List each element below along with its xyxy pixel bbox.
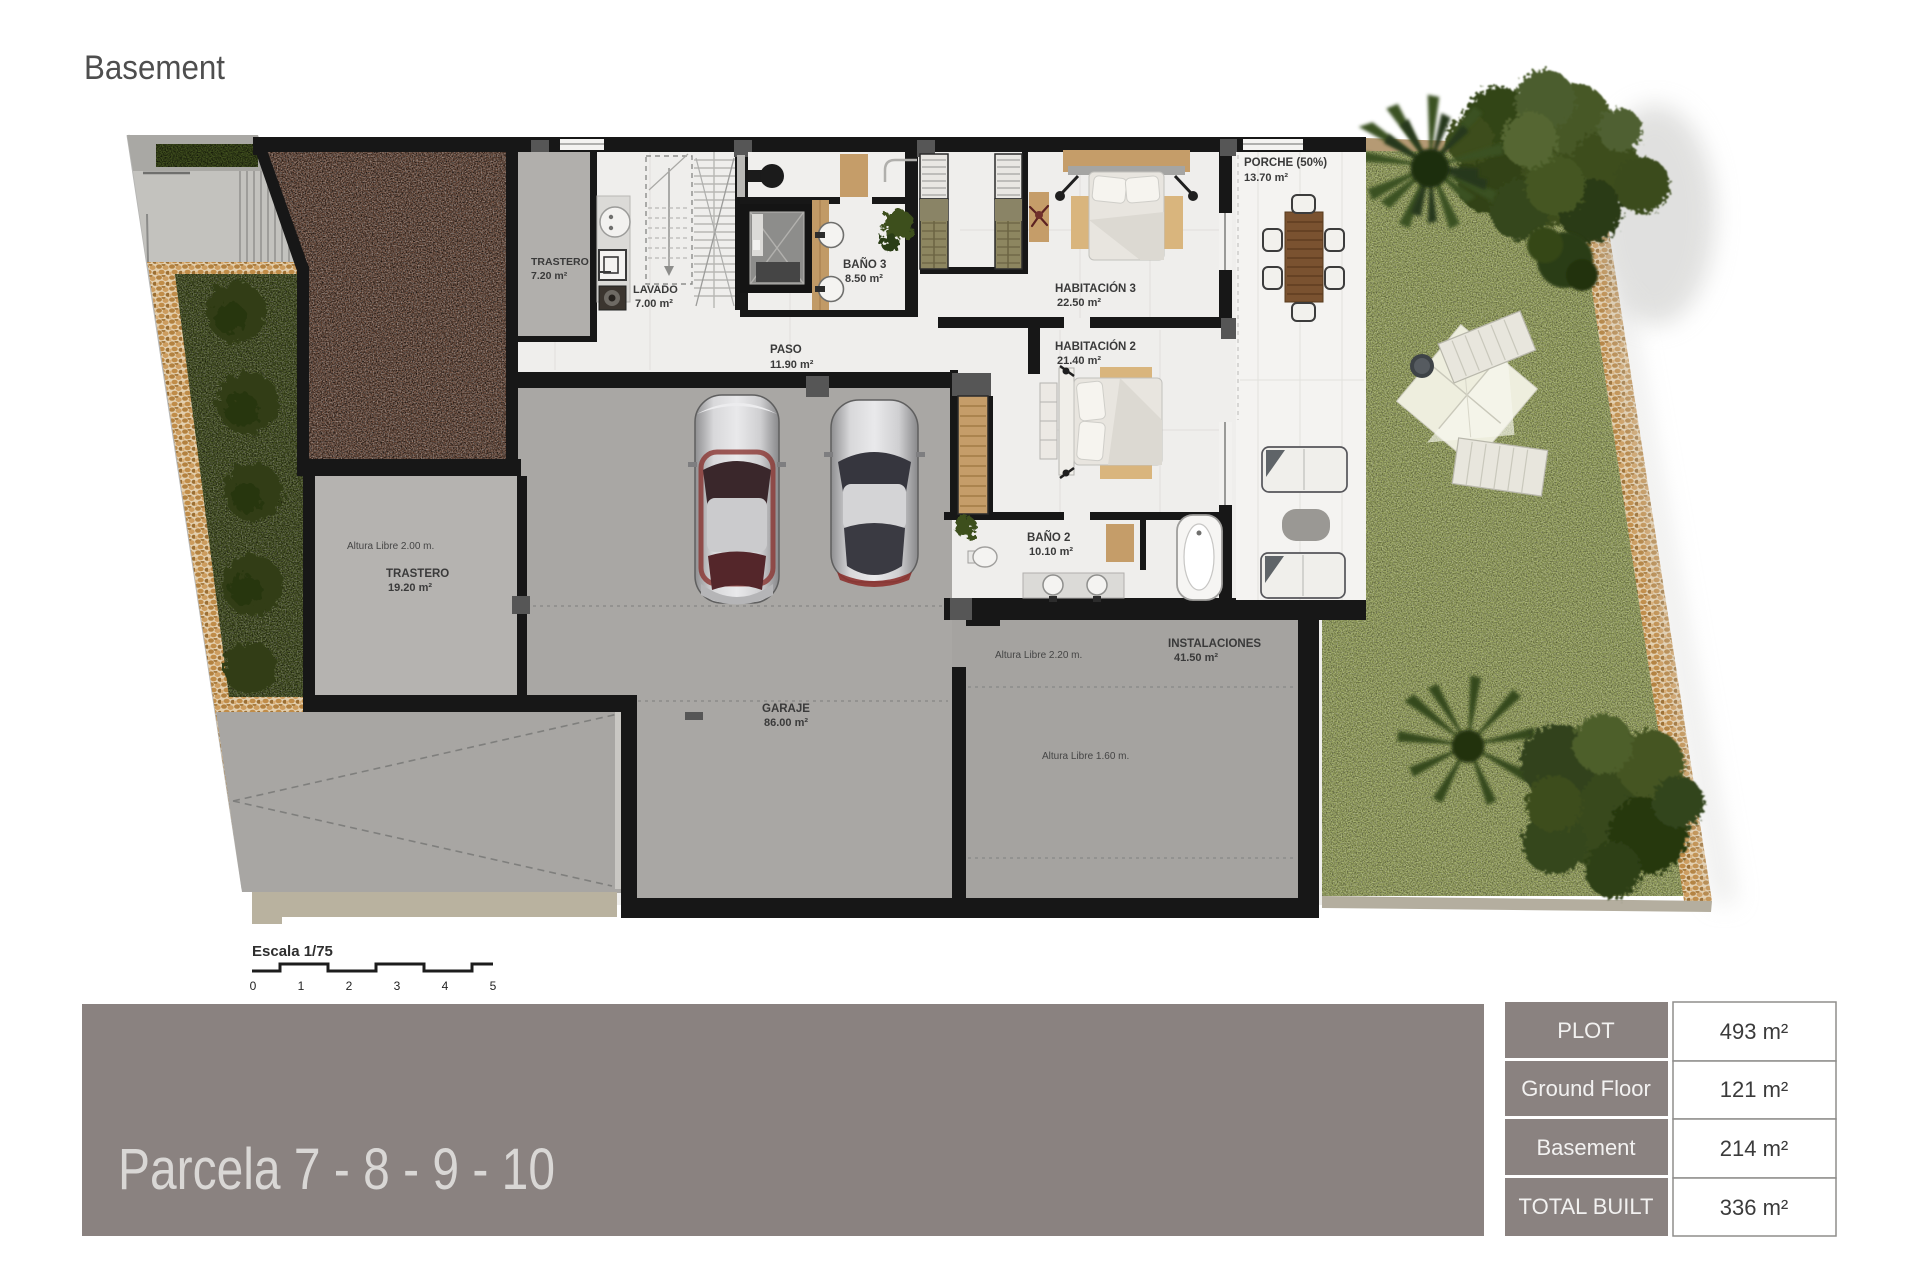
- svg-text:493 m²: 493 m²: [1720, 1019, 1788, 1044]
- svg-text:7.00 m²: 7.00 m²: [635, 298, 673, 310]
- svg-text:86.00 m²: 86.00 m²: [764, 717, 808, 729]
- svg-text:121 m²: 121 m²: [1720, 1077, 1788, 1102]
- svg-text:Parcela 7 - 8 - 9 - 10: Parcela 7 - 8 - 9 - 10: [118, 1137, 555, 1202]
- svg-text:GARAJE: GARAJE: [762, 703, 810, 715]
- svg-text:BAÑO 2: BAÑO 2: [1027, 531, 1070, 544]
- svg-text:4: 4: [442, 979, 449, 993]
- svg-text:3: 3: [394, 979, 401, 993]
- svg-text:336 m²: 336 m²: [1720, 1195, 1788, 1220]
- svg-text:INSTALACIONES: INSTALACIONES: [1168, 638, 1261, 650]
- svg-text:10.10 m²: 10.10 m²: [1029, 546, 1073, 558]
- svg-text:21.40 m²: 21.40 m²: [1057, 355, 1101, 367]
- svg-text:PLOT: PLOT: [1557, 1018, 1614, 1043]
- svg-text:Altura Libre 2.00 m.: Altura Libre 2.00 m.: [347, 541, 434, 552]
- svg-text:13.70 m²: 13.70 m²: [1244, 172, 1288, 184]
- svg-text:Basement: Basement: [1536, 1135, 1635, 1160]
- svg-text:Ground Floor: Ground Floor: [1521, 1076, 1651, 1101]
- svg-text:0: 0: [250, 979, 257, 993]
- svg-text:PORCHE (50%): PORCHE (50%): [1244, 157, 1327, 169]
- svg-text:22.50 m²: 22.50 m²: [1057, 297, 1101, 309]
- svg-text:11.90 m²: 11.90 m²: [770, 359, 814, 371]
- svg-text:Altura Libre 2.20 m.: Altura Libre 2.20 m.: [995, 650, 1082, 661]
- svg-text:5: 5: [490, 979, 497, 993]
- svg-text:8.50 m²: 8.50 m²: [845, 273, 883, 285]
- svg-text:19.20 m²: 19.20 m²: [388, 582, 432, 594]
- svg-text:Escala 1/75: Escala 1/75: [252, 943, 333, 960]
- svg-text:Altura Libre 1.60 m.: Altura Libre 1.60 m.: [1042, 751, 1129, 762]
- svg-text:HABITACIÓN 3: HABITACIÓN 3: [1055, 282, 1136, 295]
- svg-text:2: 2: [346, 979, 353, 993]
- svg-text:7.20 m²: 7.20 m²: [531, 270, 568, 282]
- svg-text:TRASTERO: TRASTERO: [531, 256, 589, 268]
- svg-text:1: 1: [298, 979, 305, 993]
- svg-text:PASO: PASO: [770, 344, 802, 356]
- svg-text:TOTAL BUILT: TOTAL BUILT: [1519, 1194, 1654, 1219]
- svg-text:BAÑO 3: BAÑO 3: [843, 258, 886, 271]
- svg-text:TRASTERO: TRASTERO: [386, 568, 449, 580]
- svg-text:41.50 m²: 41.50 m²: [1174, 652, 1218, 664]
- svg-text:HABITACIÓN 2: HABITACIÓN 2: [1055, 340, 1136, 353]
- svg-text:LAVADO: LAVADO: [633, 284, 678, 296]
- svg-text:214 m²: 214 m²: [1720, 1136, 1788, 1161]
- svg-text:Basement: Basement: [84, 49, 226, 87]
